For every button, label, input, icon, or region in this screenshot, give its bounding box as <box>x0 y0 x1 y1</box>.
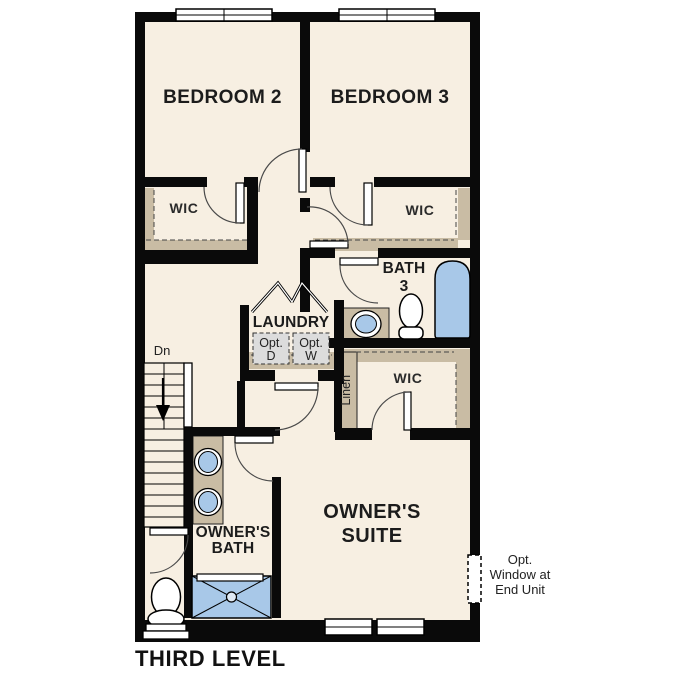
opt-window-note-3: End Unit <box>488 583 552 596</box>
owners-suite-label-1: OWNER'S <box>310 502 434 522</box>
opt-window-symbol <box>468 555 481 603</box>
owners-bath-label-2: BATH <box>192 541 274 557</box>
wic-right-label: WIC <box>394 203 446 217</box>
wic-left-label: WIC <box>158 201 210 215</box>
laundry-label: LAUNDRY <box>245 315 337 331</box>
bathtub <box>435 261 470 338</box>
bath3-label-1: BATH <box>378 261 430 277</box>
bath3-toilet <box>399 294 423 339</box>
shower <box>192 574 271 618</box>
plan-title: THIRD LEVEL <box>135 646 355 672</box>
bath3-label-2: 3 <box>378 279 430 295</box>
bedroom2-label: BEDROOM 2 <box>145 88 300 107</box>
wic-owners-label: WIC <box>382 371 434 385</box>
bedroom3-label: BEDROOM 3 <box>310 88 470 107</box>
owners-suite-label-2: SUITE <box>310 526 434 546</box>
owners-bath-label-1: OWNER'S <box>192 525 274 541</box>
opt-window-note-1: Opt. <box>488 553 552 566</box>
stairs-dn-label: Dn <box>146 344 178 357</box>
opt-washer-label-1: Opt. <box>293 337 329 350</box>
opt-dryer-label-1: Opt. <box>253 337 289 350</box>
linen-label: Linen <box>340 352 353 428</box>
opt-dryer-label-2: D <box>253 350 289 363</box>
bath3-sink <box>351 311 381 338</box>
opt-washer-label-2: W <box>293 350 329 363</box>
opt-window-note-2: Window at <box>488 568 552 581</box>
stair-railing <box>184 363 192 427</box>
floor-plan: BEDROOM 2 BEDROOM 3 WIC WIC BATH 3 LAUND… <box>0 0 687 687</box>
